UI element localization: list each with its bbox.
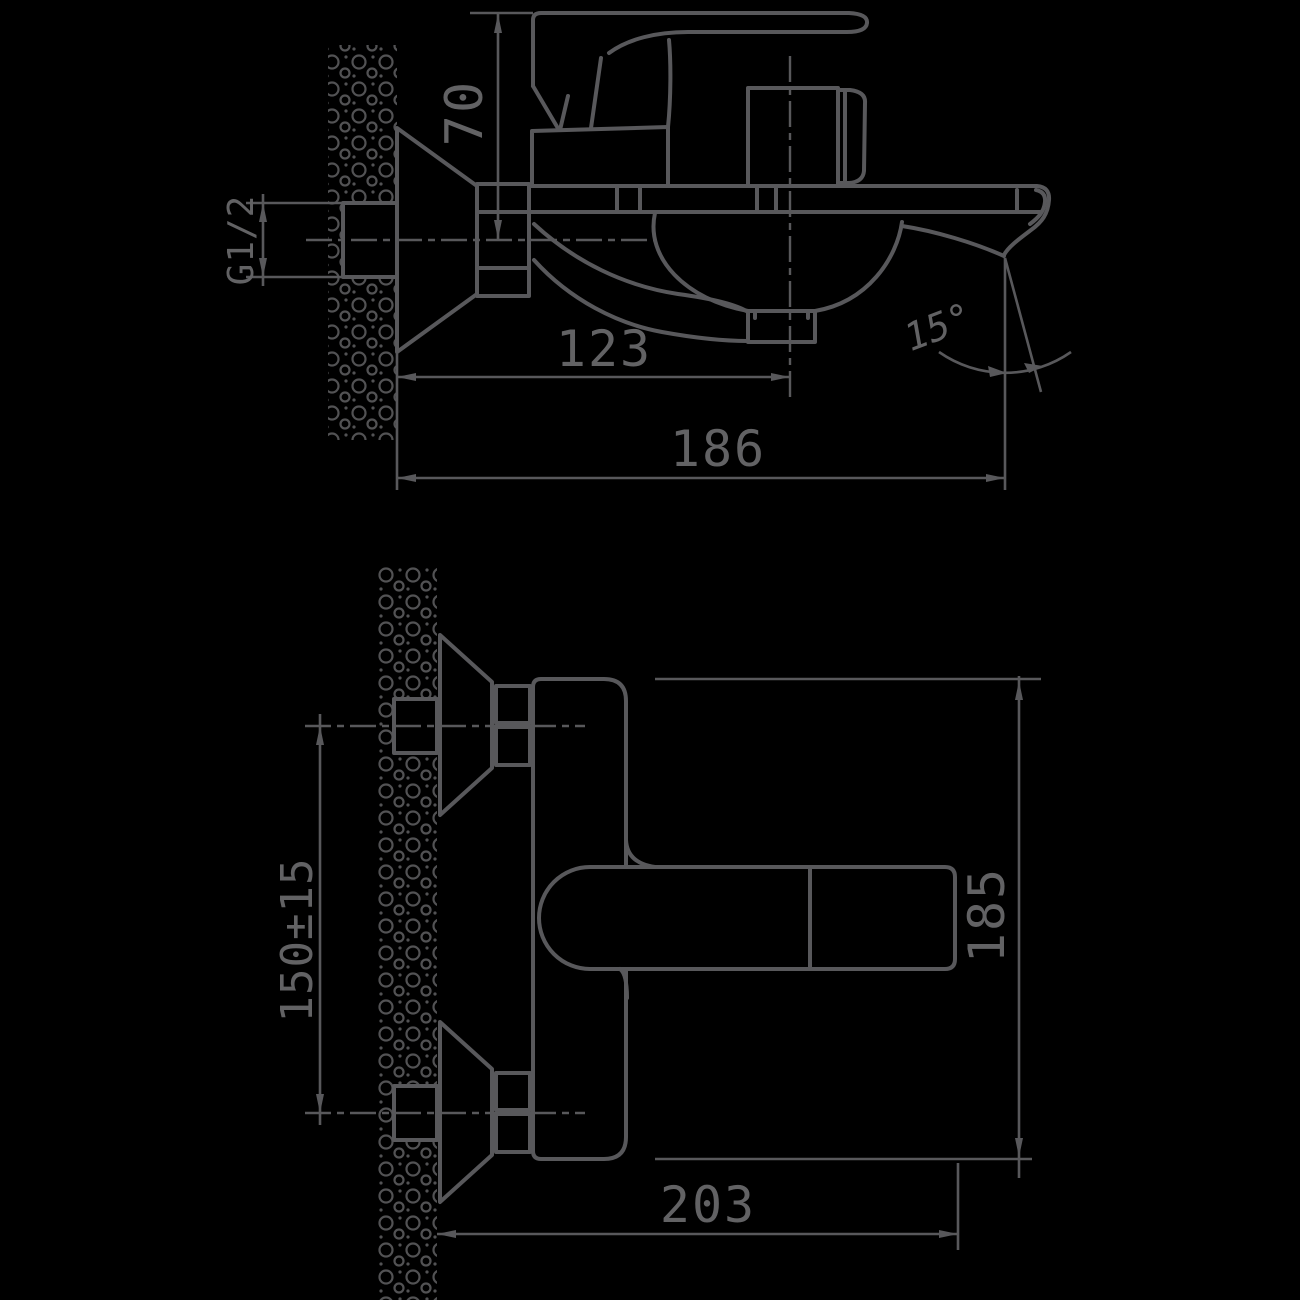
side-view: G1/2 70 123 186 (221, 13, 1071, 490)
plan-view: 150±15 185 203 (272, 565, 1041, 1300)
label-body-height: 185 (958, 867, 1016, 963)
label-inlet-spacing: 150±15 (272, 858, 323, 1023)
aerator-side (748, 311, 815, 342)
angle-15: 15° (898, 258, 1071, 392)
label-total-reach: 186 (670, 420, 766, 478)
label-spout-angle: 15° (898, 294, 978, 360)
mixer-body-plan (533, 679, 955, 1159)
wall-hatch-plan (378, 565, 437, 1300)
technical-drawing: G1/2 70 123 186 (0, 0, 1300, 1300)
label-handle-height: 70 (435, 80, 495, 147)
dimension-150: 150±15 (272, 714, 324, 1125)
drawing-canvas: G1/2 70 123 186 (0, 0, 1300, 1300)
label-thread: G1/2 (221, 195, 262, 286)
cartridge-housing-side (532, 127, 668, 186)
label-body-length: 203 (660, 1176, 756, 1234)
label-spout-reach: 123 (556, 320, 652, 378)
dimension-203: 203 (437, 1163, 958, 1250)
lever-handle-plan (539, 867, 955, 969)
diverter-knob-side (748, 88, 865, 186)
